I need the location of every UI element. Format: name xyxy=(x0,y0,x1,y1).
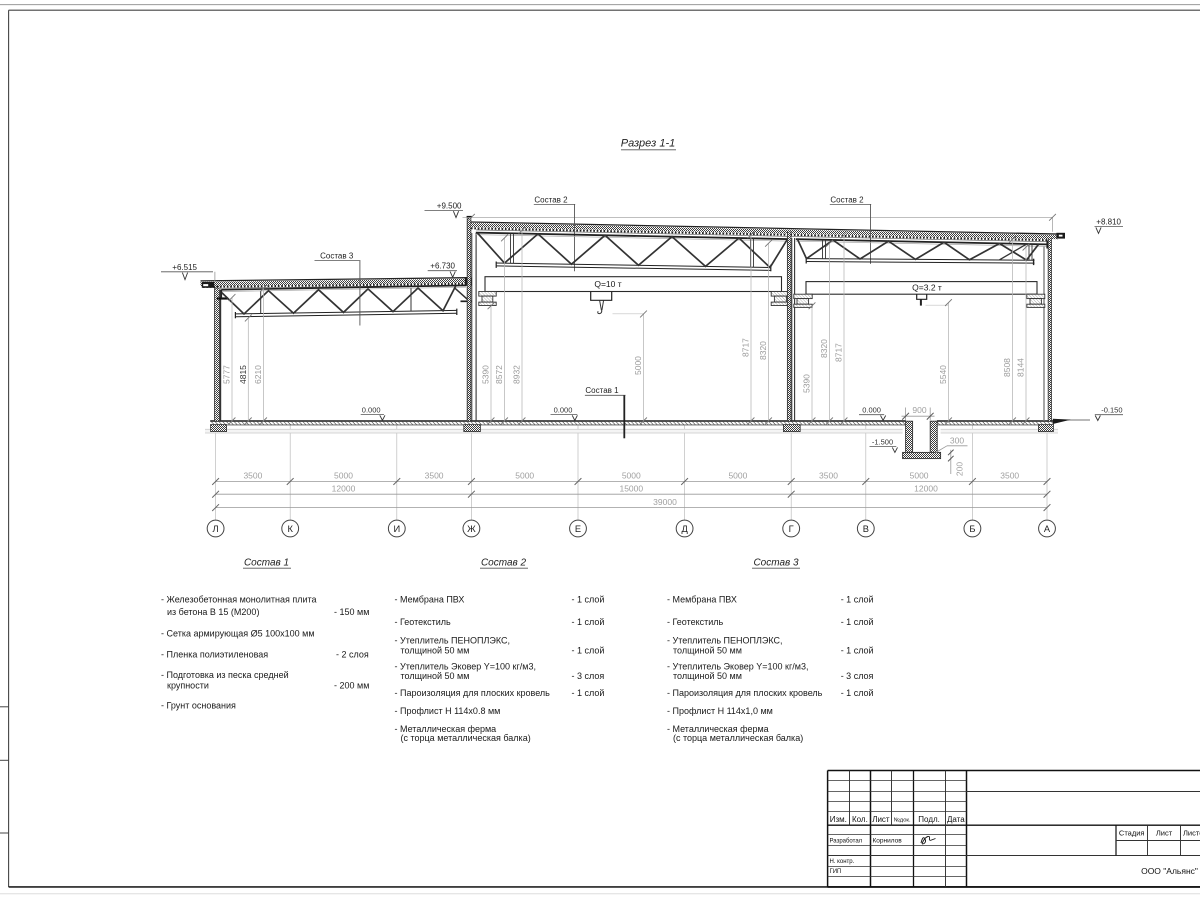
svg-text:- Профлист Н 114х0.8 мм: - Профлист Н 114х0.8 мм xyxy=(395,706,501,716)
svg-text:К: К xyxy=(287,524,293,534)
svg-text:И: И xyxy=(393,524,400,534)
svg-text:5540: 5540 xyxy=(938,365,948,384)
svg-text:- Сетка армирующая Ø5 100х100: - Сетка армирующая Ø5 100х100 мм xyxy=(161,629,315,639)
svg-text:Листов: Листов xyxy=(1183,829,1200,838)
svg-text:Дата: Дата xyxy=(947,815,965,824)
svg-text:900: 900 xyxy=(912,405,926,415)
svg-text:8320: 8320 xyxy=(758,341,768,360)
svg-text:+9.500: +9.500 xyxy=(437,201,462,210)
svg-text:12000: 12000 xyxy=(914,483,938,493)
svg-text:Q=3.2 т: Q=3.2 т xyxy=(912,283,942,293)
svg-text:Q=10 т: Q=10 т xyxy=(594,279,621,289)
svg-text:+6.730: +6.730 xyxy=(430,262,455,271)
svg-text:- Пленка полиэтиленовая: - Пленка полиэтиленовая xyxy=(161,650,268,660)
svg-text:- Мембрана ПВХ: - Мембрана ПВХ xyxy=(395,595,465,605)
svg-text:8508: 8508 xyxy=(1002,358,1012,377)
svg-text:8717: 8717 xyxy=(834,343,844,362)
svg-text:- 1 слой: - 1 слой xyxy=(841,595,874,605)
svg-text:-0.150: -0.150 xyxy=(1101,405,1122,414)
svg-text:- 1 слой: - 1 слой xyxy=(841,646,874,656)
svg-text:3500: 3500 xyxy=(819,471,838,481)
svg-text:- 200 мм: - 200 мм xyxy=(334,680,369,690)
svg-text:- 2 слоя: - 2 слоя xyxy=(336,650,369,660)
svg-text:5000: 5000 xyxy=(633,356,643,375)
svg-text:5000: 5000 xyxy=(728,471,747,481)
svg-text:300: 300 xyxy=(950,436,964,446)
svg-text:Н. контр.: Н. контр. xyxy=(830,859,855,865)
svg-text:6210: 6210 xyxy=(253,365,263,384)
svg-text:Состав 1: Состав 1 xyxy=(244,557,289,568)
svg-text:Д: Д xyxy=(681,524,688,534)
svg-text:3500: 3500 xyxy=(425,471,444,481)
svg-text:толщиной 50 мм: толщиной 50 мм xyxy=(401,646,470,656)
svg-text:- 1 слой: - 1 слой xyxy=(841,688,874,698)
svg-text:(с торца металлическая балка): (с торца металлическая балка) xyxy=(401,733,531,743)
svg-text:4815: 4815 xyxy=(238,365,248,384)
svg-text:Кол.: Кол. xyxy=(852,815,868,824)
svg-text:+6.515: +6.515 xyxy=(172,263,197,272)
svg-text:Корнилов: Корнилов xyxy=(873,837,903,844)
svg-text:5390: 5390 xyxy=(802,374,812,393)
svg-text:5000: 5000 xyxy=(622,471,641,481)
svg-text:15000: 15000 xyxy=(619,483,643,493)
svg-text:Состав 2: Состав 2 xyxy=(481,557,527,568)
svg-text:толщиной 50 мм: толщиной 50 мм xyxy=(401,671,470,681)
svg-text:-1.500: -1.500 xyxy=(872,437,893,446)
svg-text:В: В xyxy=(863,524,869,534)
svg-text:0.000: 0.000 xyxy=(862,405,881,414)
svg-text:Состав 3: Состав 3 xyxy=(320,252,354,261)
svg-text:Ж: Ж xyxy=(467,524,476,534)
svg-text:- Геотекстиль: - Геотекстиль xyxy=(395,617,452,627)
svg-text:- Утеплитель ПЕНОПЛЭКС,: - Утеплитель ПЕНОПЛЭКС, xyxy=(667,636,783,646)
svg-text:(с торца металлическая балка): (с торца металлическая балка) xyxy=(673,733,803,743)
svg-text:8717: 8717 xyxy=(741,338,751,357)
svg-text:ГИП: ГИП xyxy=(830,869,842,875)
svg-text:8572: 8572 xyxy=(494,365,504,384)
svg-text:8320: 8320 xyxy=(819,339,829,358)
svg-text:Разрез 1-1: Разрез 1-1 xyxy=(621,138,676,150)
svg-text:- 3 слоя: - 3 слоя xyxy=(572,671,605,681)
svg-text:- Подготовка из песка средней: - Подготовка из песка средней xyxy=(161,670,289,680)
svg-text:- Геотекстиль: - Геотекстиль xyxy=(667,617,724,627)
svg-text:Состав 2: Состав 2 xyxy=(830,195,864,204)
svg-text:0.000: 0.000 xyxy=(362,405,381,414)
svg-text:- Профлист Н 114х1,0 мм: - Профлист Н 114х1,0 мм xyxy=(667,706,773,716)
svg-text:- Утеплитель Эковер Y=100 кг/м: - Утеплитель Эковер Y=100 кг/м3, xyxy=(395,661,536,671)
svg-text:- Железобетонная монолитная п: - Железобетонная монолитная плита xyxy=(161,595,317,605)
svg-text:5000: 5000 xyxy=(515,471,534,481)
svg-text:5000: 5000 xyxy=(334,471,353,481)
svg-text:крупности: крупности xyxy=(167,680,209,690)
svg-text:Изм.: Изм. xyxy=(830,815,847,824)
svg-text:- Утеплитель ПЕНОПЛЭКС,: - Утеплитель ПЕНОПЛЭКС, xyxy=(395,636,511,646)
svg-text:Состав 3: Состав 3 xyxy=(753,557,799,568)
svg-text:39000: 39000 xyxy=(653,497,677,507)
svg-text:- 1 слой: - 1 слой xyxy=(572,688,605,698)
svg-text:8144: 8144 xyxy=(1016,358,1026,377)
svg-text:Г: Г xyxy=(789,524,794,534)
svg-text:5000: 5000 xyxy=(910,471,929,481)
svg-text:толщиной 50 мм: толщиной 50 мм xyxy=(673,646,742,656)
svg-text:+8.810: +8.810 xyxy=(1096,218,1121,227)
svg-text:5777: 5777 xyxy=(222,365,232,384)
svg-text:Состав 2: Состав 2 xyxy=(534,195,568,204)
svg-text:Л: Л xyxy=(213,524,219,534)
svg-text:12000: 12000 xyxy=(332,483,356,493)
svg-text:5390: 5390 xyxy=(481,365,491,384)
svg-text:3500: 3500 xyxy=(243,471,262,481)
svg-text:- 150 мм: - 150 мм xyxy=(334,607,369,617)
svg-text:- Пароизоляция для плоских кро: - Пароизоляция для плоских кровель xyxy=(667,688,823,698)
svg-text:Разработал: Разработал xyxy=(830,838,863,844)
svg-text:Лист: Лист xyxy=(1156,829,1173,838)
svg-text:из бетона В 15 (М200): из бетона В 15 (М200) xyxy=(167,607,259,617)
svg-text:8932: 8932 xyxy=(512,365,522,384)
svg-text:Стадия: Стадия xyxy=(1119,829,1145,838)
svg-text:- Утеплитель Эковер Y=100 кг/м: - Утеплитель Эковер Y=100 кг/м3, xyxy=(667,661,808,671)
svg-text:- Мембрана ПВХ: - Мембрана ПВХ xyxy=(667,595,737,605)
svg-text:Состав 1: Состав 1 xyxy=(585,386,619,395)
svg-text:№док.: №док. xyxy=(894,817,911,823)
svg-text:Подл.: Подл. xyxy=(918,815,940,824)
svg-text:200: 200 xyxy=(955,462,965,476)
svg-text:ООО "Альянс": ООО "Альянс" xyxy=(1141,866,1198,876)
svg-text:- 1 слой: - 1 слой xyxy=(572,617,605,627)
svg-text:3500: 3500 xyxy=(1000,471,1019,481)
svg-text:- 1 слой: - 1 слой xyxy=(572,646,605,656)
svg-text:А: А xyxy=(1044,524,1051,534)
svg-text:толщиной 50 мм: толщиной 50 мм xyxy=(673,671,742,681)
svg-text:0.000: 0.000 xyxy=(554,405,573,414)
svg-text:- 1 слой: - 1 слой xyxy=(572,595,605,605)
svg-text:Лист: Лист xyxy=(872,815,890,824)
svg-text:- 1 слой: - 1 слой xyxy=(841,617,874,627)
svg-text:Б: Б xyxy=(969,524,975,534)
svg-text:Е: Е xyxy=(575,524,581,534)
svg-text:- Грунт основания: - Грунт основания xyxy=(161,701,236,711)
svg-text:- Пароизоляция для плоских кро: - Пароизоляция для плоских кровель xyxy=(395,688,551,698)
svg-text:- 3 слоя: - 3 слоя xyxy=(841,671,874,681)
